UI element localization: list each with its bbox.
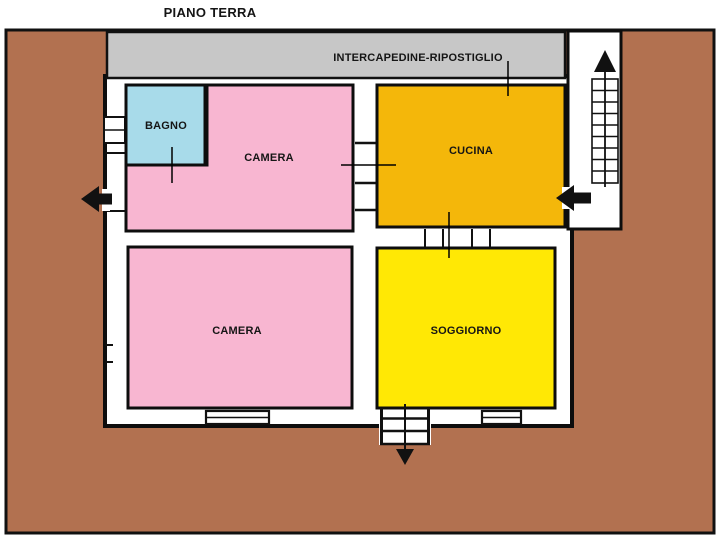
floor-plan-drawing: PIANO TERRA INTERCAPEDINE-RIPOSTIGLIO BA [0, 0, 720, 549]
strip-label: INTERCAPEDINE-RIPOSTIGLIO [333, 52, 503, 64]
room-soggiorno-label: SOGGIORNO [431, 325, 502, 337]
room-bagno-label: BAGNO [145, 120, 187, 132]
room-camera-bottom-label: CAMERA [212, 325, 261, 337]
floor-plan-page: PIANO TERRA INTERCAPEDINE-RIPOSTIGLIO BA [0, 0, 720, 549]
room-cucina-label: CUCINA [449, 145, 493, 157]
room-camera-top-label: CAMERA [244, 152, 293, 164]
bottom-window-soggiorno [482, 411, 521, 424]
left-wall-window [104, 117, 125, 143]
page-title: PIANO TERRA [164, 5, 257, 20]
bottom-window-camera [206, 411, 269, 424]
